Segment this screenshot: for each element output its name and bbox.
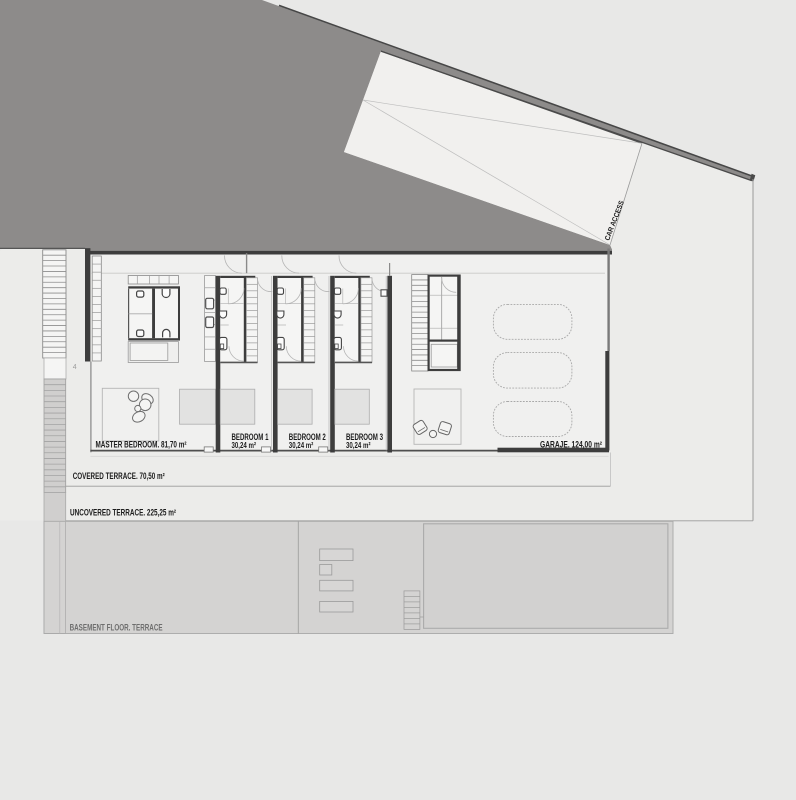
svg-text:COVERED TERRACE. 70,50 m²: COVERED TERRACE. 70,50 m²: [73, 471, 165, 481]
svg-text:30,24 m²: 30,24 m²: [289, 440, 314, 450]
svg-text:MASTER BEDROOM. 81,70 m²: MASTER BEDROOM. 81,70 m²: [96, 440, 187, 450]
svg-text:30,24 m²: 30,24 m²: [346, 440, 371, 450]
svg-text:30,24 m²: 30,24 m²: [232, 440, 257, 450]
svg-text:UNCOVERED TERRACE. 225,25 m²: UNCOVERED TERRACE. 225,25 m²: [70, 508, 176, 518]
svg-text:BASEMENT FLOOR. TERRACE: BASEMENT FLOOR. TERRACE: [70, 623, 163, 633]
svg-text:GARAJE. 124,00 m²: GARAJE. 124,00 m²: [540, 439, 602, 449]
svg-text:4: 4: [73, 364, 77, 371]
